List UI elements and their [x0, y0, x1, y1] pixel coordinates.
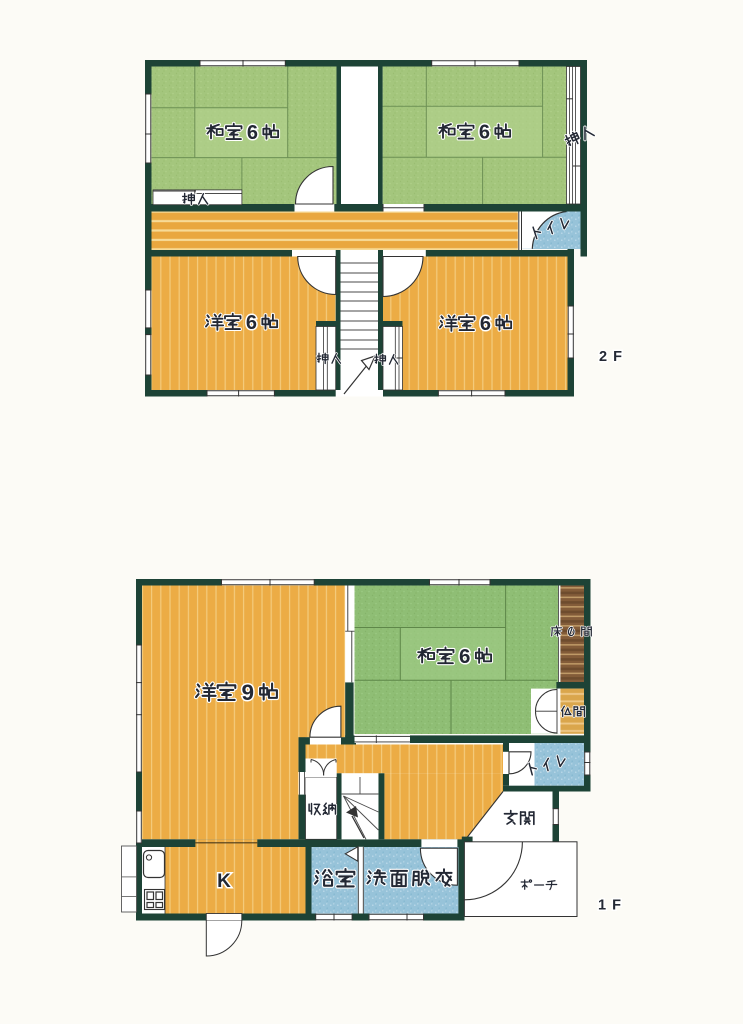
svg-text:6: 6	[459, 645, 470, 668]
svg-text:K: K	[217, 871, 231, 892]
svg-text:6: 6	[247, 122, 258, 144]
svg-text:2 F: 2 F	[599, 349, 623, 365]
svg-text:6: 6	[479, 121, 490, 143]
svg-text:6: 6	[246, 312, 257, 334]
svg-text:6: 6	[480, 313, 491, 335]
svg-text:1 F: 1 F	[598, 898, 622, 914]
svg-text:9: 9	[242, 680, 255, 705]
